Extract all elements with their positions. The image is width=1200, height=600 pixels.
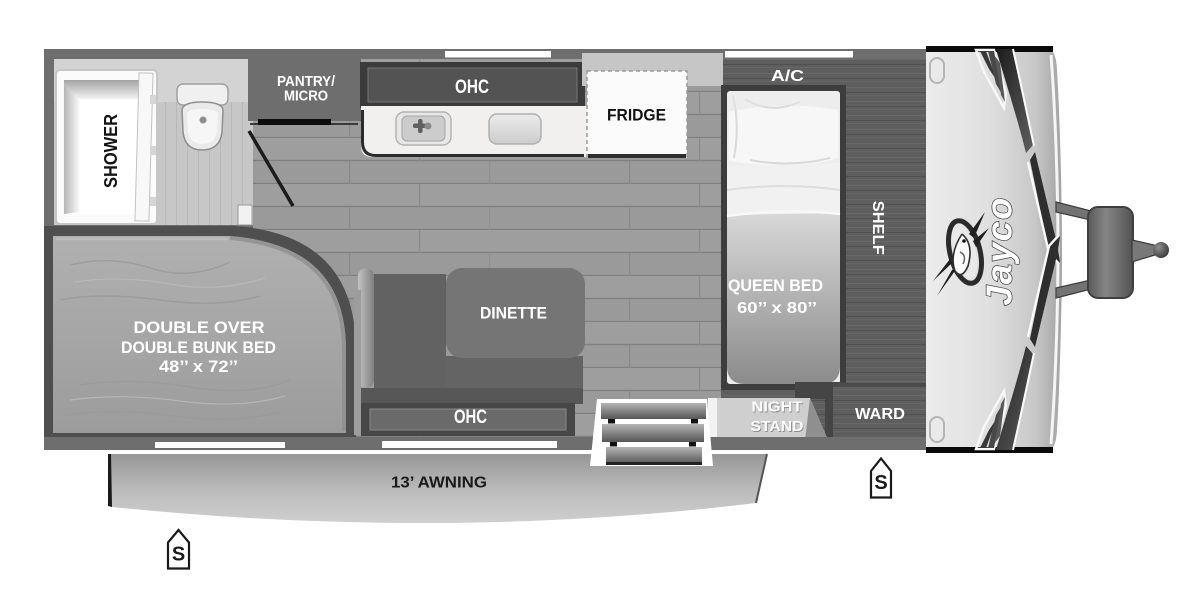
svg-text:S: S [172, 544, 185, 566]
svg-text:60’’ x 80’’: 60’’ x 80’’ [737, 300, 817, 317]
svg-text:QUEEN BED: QUEEN BED [728, 276, 823, 295]
svg-text:MICRO: MICRO [284, 88, 328, 105]
svg-text:A/C: A/C [771, 68, 805, 85]
svg-text:OHC: OHC [455, 76, 489, 98]
svg-text:DINETTE: DINETTE [480, 305, 547, 323]
svg-text:48’’ x 72’’: 48’’ x 72’’ [159, 358, 238, 376]
svg-text:SHOWER: SHOWER [100, 114, 121, 188]
svg-text:SHELF: SHELF [869, 201, 886, 255]
svg-text:FRIDGE: FRIDGE [607, 106, 666, 125]
svg-text:STAND: STAND [751, 418, 804, 435]
svg-text:WARD: WARD [855, 406, 905, 423]
svg-text:OHC: OHC [454, 407, 487, 428]
svg-text:13’ AWNING: 13’ AWNING [391, 475, 487, 492]
svg-text:NIGHT: NIGHT [752, 399, 803, 416]
svg-text:DOUBLE OVER: DOUBLE OVER [134, 319, 265, 337]
svg-text:S: S [874, 472, 887, 494]
svg-text:DOUBLE BUNK BED: DOUBLE BUNK BED [121, 339, 276, 357]
